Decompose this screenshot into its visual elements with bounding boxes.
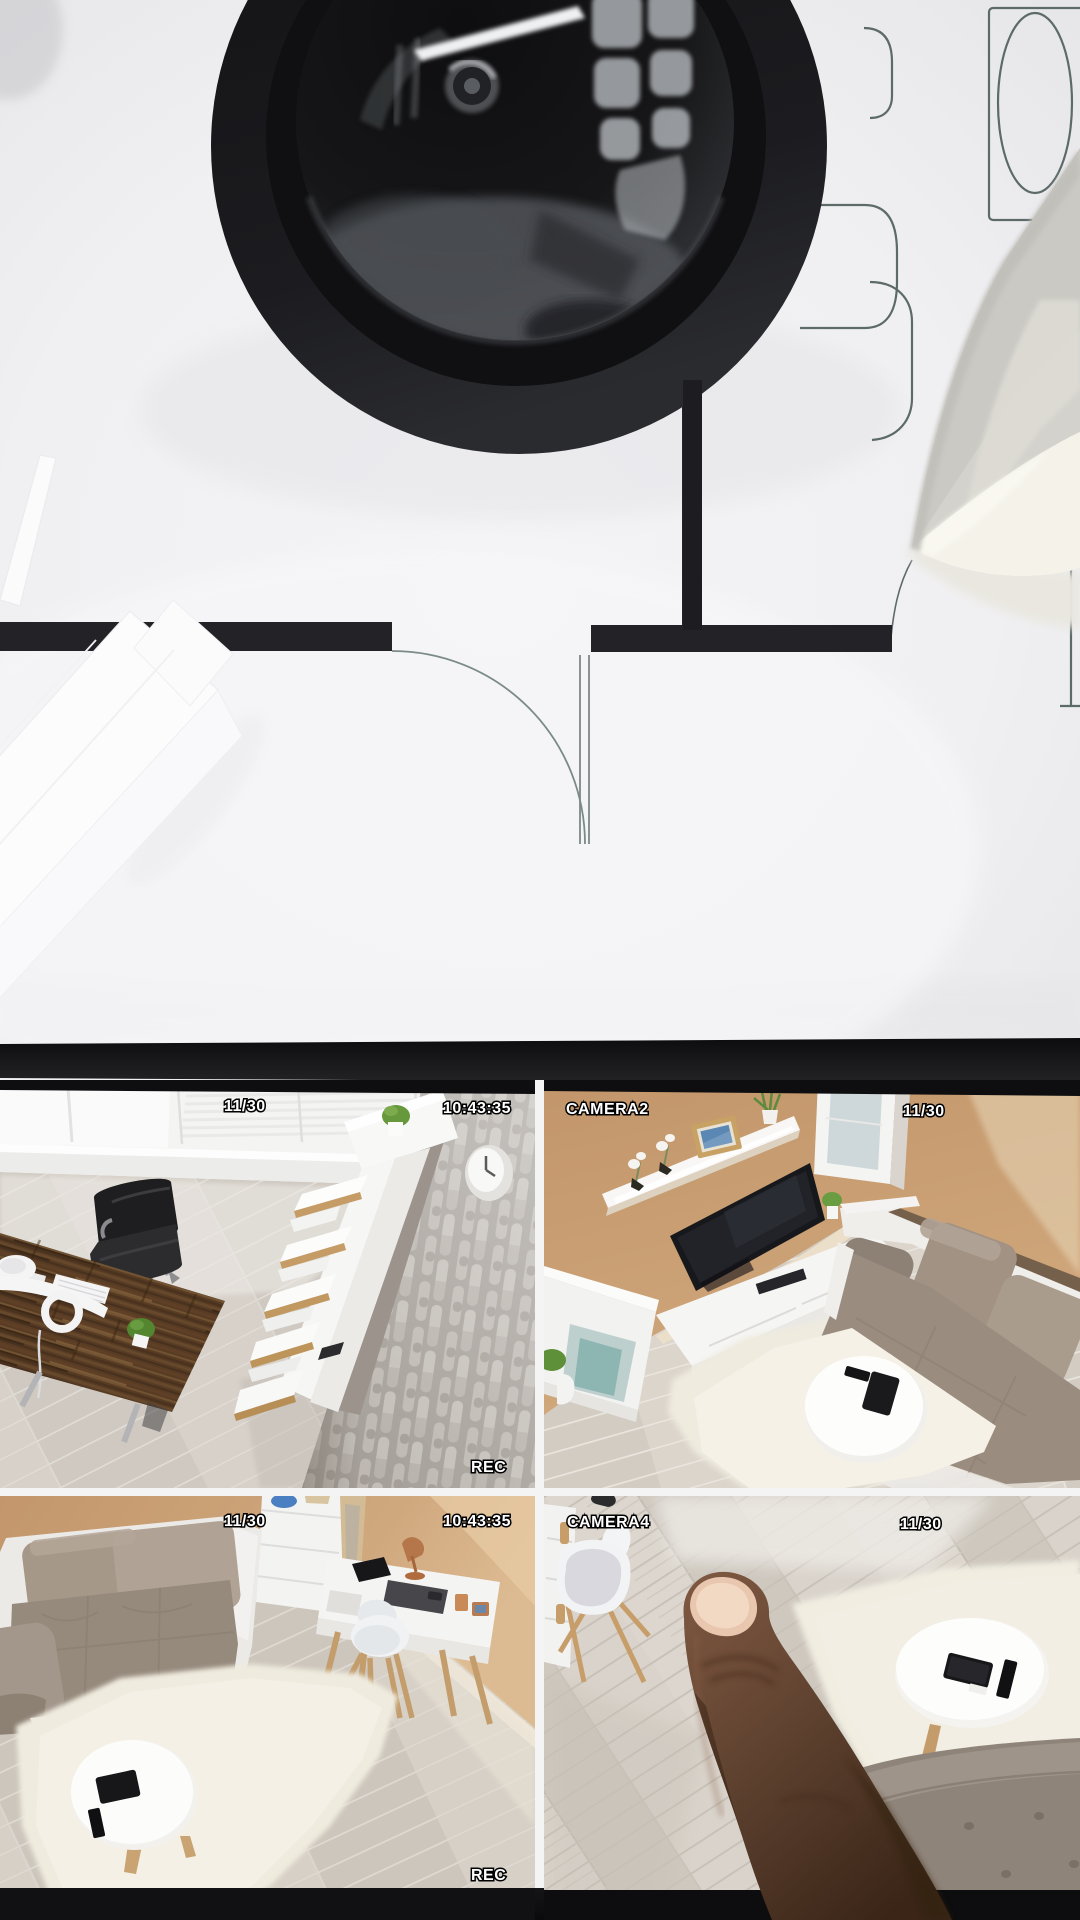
svg-text:CAMERA2: CAMERA2 xyxy=(566,1101,649,1118)
svg-text:11/30: 11/30 xyxy=(903,1103,945,1120)
svg-text:REC: REC xyxy=(471,1867,506,1884)
svg-text:11/30: 11/30 xyxy=(224,1513,266,1530)
svg-text:11/30: 11/30 xyxy=(900,1516,942,1533)
svg-text:REC: REC xyxy=(471,1459,506,1476)
svg-text:10:43:35: 10:43:35 xyxy=(443,1513,511,1530)
svg-text:11/30: 11/30 xyxy=(224,1098,266,1115)
svg-text:10:43:35: 10:43:35 xyxy=(443,1100,511,1117)
svg-text:CAMERA4: CAMERA4 xyxy=(567,1514,650,1531)
